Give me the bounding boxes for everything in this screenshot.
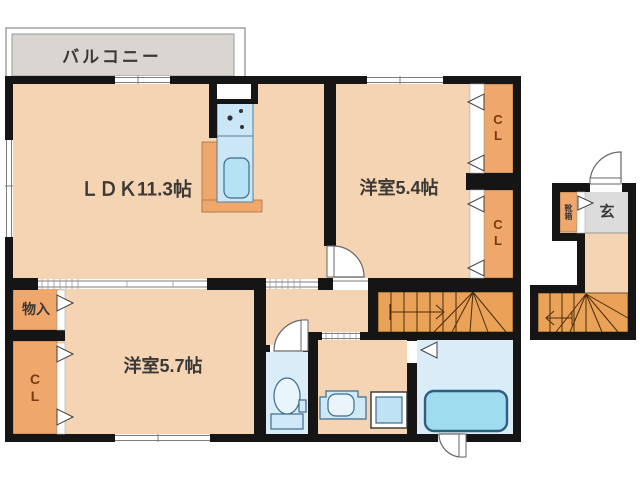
sliding-door-ldk-bedroom-b (38, 279, 207, 289)
door-gap-bedroom-a (333, 278, 368, 290)
window-bedroom-a (367, 76, 443, 84)
door-gap-bathroom (407, 341, 417, 363)
shoe-cabinet-label: 靴箱 (564, 204, 572, 220)
closet-b-label: CL (492, 217, 505, 249)
floors (13, 84, 628, 434)
bedroom-b-label: 洋室5.7帖 (123, 357, 202, 375)
window-balcony (115, 76, 170, 84)
balcony-label: バルコニー (62, 49, 162, 66)
ldk-label: ＬＤＫ11.3帖 (80, 181, 192, 200)
opening-ldk-hall (266, 279, 318, 289)
bedroom-a-label: 洋室5.4帖 (359, 179, 438, 197)
floor-plan-drawing (0, 0, 640, 480)
floor-plan: バルコニー ＬＤＫ11.3帖 洋室5.4帖 洋室5.7帖 CL CL CL 物入… (0, 0, 640, 480)
window-bedroom-b (115, 434, 210, 442)
storage-label: 物入 (22, 302, 50, 316)
main-stairs (378, 292, 513, 332)
opening-washroom (322, 332, 360, 340)
washing-machine-pan-icon (371, 392, 407, 428)
kitchen-niche (217, 84, 251, 99)
closet-a-label: CL (492, 112, 505, 144)
bathtub-icon (425, 391, 507, 431)
window-ldk-left (5, 140, 13, 237)
closet-c-label: CL (28, 371, 42, 405)
kitchen-sink-icon (224, 158, 249, 198)
entrance-label: 玄 (599, 205, 614, 220)
entry-stairs (538, 293, 628, 332)
